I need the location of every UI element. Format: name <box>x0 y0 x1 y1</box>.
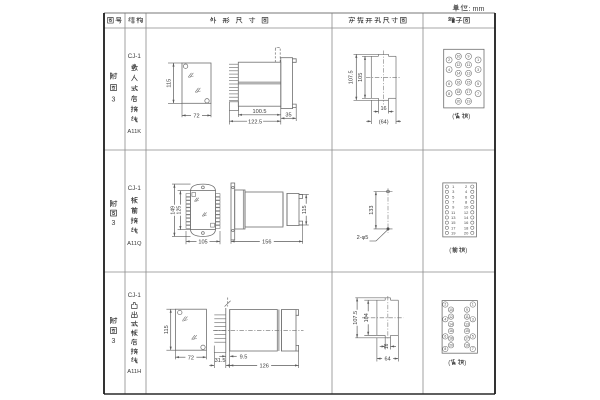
svg-text:115: 115 <box>167 79 173 88</box>
svg-text:3: 3 <box>472 317 474 321</box>
svg-text:12: 12 <box>449 315 453 319</box>
svg-text:5: 5 <box>472 335 474 339</box>
svg-text:107.5: 107.5 <box>353 311 359 325</box>
svg-text:18: 18 <box>449 337 453 341</box>
svg-text:6: 6 <box>448 82 450 86</box>
svg-text:19: 19 <box>467 100 471 104</box>
svg-text:A11H: A11H <box>127 369 141 375</box>
svg-text:(64): (64) <box>379 119 389 125</box>
svg-text:8: 8 <box>448 92 450 96</box>
svg-text:4: 4 <box>448 68 450 72</box>
svg-text:CJ-1: CJ-1 <box>128 53 142 60</box>
svg-text:13: 13 <box>467 72 471 76</box>
svg-text:125: 125 <box>176 206 182 215</box>
svg-text:2-φ5: 2-φ5 <box>357 235 369 241</box>
svg-text:3: 3 <box>112 220 116 227</box>
svg-text:16: 16 <box>384 343 390 349</box>
svg-text:17: 17 <box>467 90 471 94</box>
svg-text:11: 11 <box>465 315 469 319</box>
svg-text:13: 13 <box>465 322 469 326</box>
svg-text:15: 15 <box>465 329 469 333</box>
svg-text:64: 64 <box>385 357 391 363</box>
svg-text:9: 9 <box>468 55 470 59</box>
svg-text:3: 3 <box>112 338 116 345</box>
svg-text:10: 10 <box>449 308 453 312</box>
svg-text:7: 7 <box>472 347 474 351</box>
svg-text:16: 16 <box>449 329 453 333</box>
svg-text:72: 72 <box>188 355 194 361</box>
svg-text:5: 5 <box>477 82 479 86</box>
svg-text:156: 156 <box>262 239 271 245</box>
svg-text:9.5: 9.5 <box>240 354 248 360</box>
svg-text:133: 133 <box>369 206 375 215</box>
svg-text:9: 9 <box>466 308 468 312</box>
svg-text:): ) <box>465 248 467 254</box>
svg-text:105: 105 <box>358 73 364 82</box>
svg-text:7: 7 <box>477 92 479 96</box>
svg-text:): ) <box>468 114 470 120</box>
svg-text:3: 3 <box>477 68 479 72</box>
svg-text:: mm: : mm <box>469 4 485 13</box>
svg-text:(: ( <box>448 360 450 366</box>
svg-text:8: 8 <box>444 347 446 351</box>
svg-text:107.5: 107.5 <box>349 70 355 84</box>
svg-text:19: 19 <box>465 344 469 348</box>
svg-text:105: 105 <box>198 239 207 245</box>
svg-text:CJ-1: CJ-1 <box>128 185 142 192</box>
svg-text:6: 6 <box>444 335 446 339</box>
svg-text:126: 126 <box>259 363 268 369</box>
svg-text:2: 2 <box>448 58 450 62</box>
svg-text:(: ( <box>449 248 451 254</box>
svg-text:35: 35 <box>285 113 291 119</box>
svg-text:15: 15 <box>467 80 471 84</box>
svg-text:20: 20 <box>456 100 460 104</box>
svg-text:16: 16 <box>456 80 460 84</box>
svg-text:1: 1 <box>477 58 479 62</box>
svg-text:4: 4 <box>444 317 446 321</box>
svg-text:10: 10 <box>456 55 460 59</box>
svg-text:17: 17 <box>465 337 469 341</box>
svg-text:3: 3 <box>112 96 116 103</box>
svg-text:18: 18 <box>456 90 460 94</box>
svg-text:14: 14 <box>449 322 453 326</box>
svg-text:19: 19 <box>451 230 456 235</box>
svg-text:(: ( <box>452 114 454 120</box>
svg-text:14: 14 <box>456 72 460 76</box>
svg-text:A11Q: A11Q <box>127 241 142 247</box>
svg-text:122.5: 122.5 <box>248 119 262 125</box>
svg-text:115: 115 <box>302 205 308 214</box>
svg-text:16: 16 <box>380 106 386 112</box>
svg-text:115: 115 <box>164 325 170 334</box>
svg-text:A11K: A11K <box>127 129 141 135</box>
svg-text:100.5: 100.5 <box>253 109 267 115</box>
svg-text:): ) <box>464 360 466 366</box>
svg-text:12: 12 <box>456 63 460 67</box>
svg-text:11: 11 <box>467 63 471 67</box>
svg-text:2: 2 <box>444 303 446 307</box>
svg-text:104: 104 <box>364 313 370 322</box>
svg-text:31.5: 31.5 <box>215 358 226 364</box>
svg-text:1: 1 <box>472 303 474 307</box>
svg-text:20: 20 <box>449 344 453 348</box>
svg-text:72: 72 <box>193 113 199 119</box>
svg-text:CJ-1: CJ-1 <box>128 292 142 299</box>
svg-text:20: 20 <box>464 230 469 235</box>
